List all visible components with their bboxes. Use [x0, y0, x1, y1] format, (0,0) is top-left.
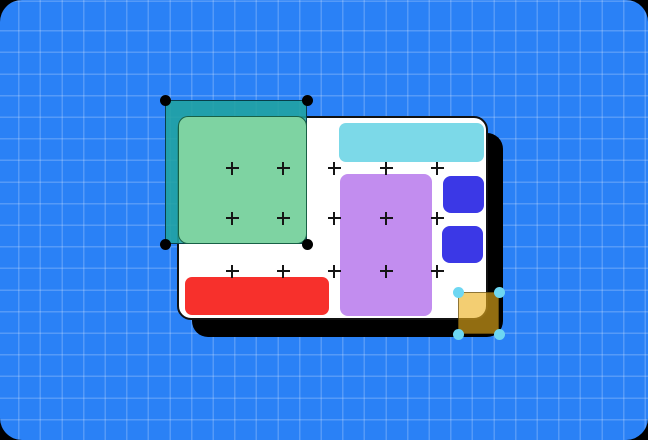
purple-rect-shape[interactable] [340, 174, 432, 316]
selection-handle-nw[interactable] [160, 95, 171, 106]
resize-handle-ne[interactable] [494, 287, 505, 298]
selection-handle-sw[interactable] [160, 239, 171, 250]
yellow-square-shape[interactable] [458, 292, 499, 334]
blue-square-shape-top[interactable] [443, 176, 484, 213]
blue-square-shape-bottom[interactable] [442, 226, 483, 263]
green-square-shape[interactable] [178, 116, 307, 244]
cyan-bar-shape[interactable] [339, 123, 484, 162]
selection-handle-ne[interactable] [302, 95, 313, 106]
resize-handle-nw[interactable] [453, 287, 464, 298]
resize-handle-sw[interactable] [453, 329, 464, 340]
selection-handle-se[interactable] [302, 239, 313, 250]
red-bar-shape[interactable] [185, 277, 329, 315]
resize-handle-se[interactable] [494, 329, 505, 340]
design-canvas-illustration [0, 0, 648, 440]
